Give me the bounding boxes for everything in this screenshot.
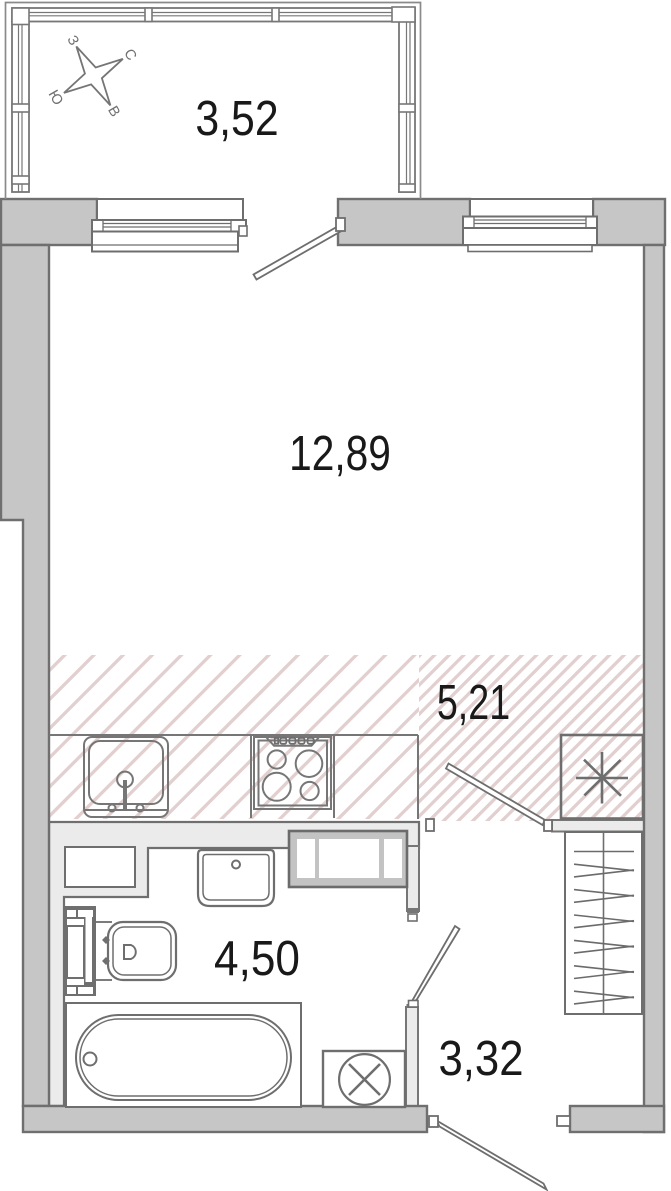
svg-text:4,50: 4,50 (214, 931, 300, 986)
svg-text:3,32: 3,32 (438, 1031, 523, 1086)
svg-text:12,89: 12,89 (289, 425, 391, 480)
svg-text:3,52: 3,52 (195, 90, 278, 145)
svg-text:5,21: 5,21 (437, 675, 510, 730)
